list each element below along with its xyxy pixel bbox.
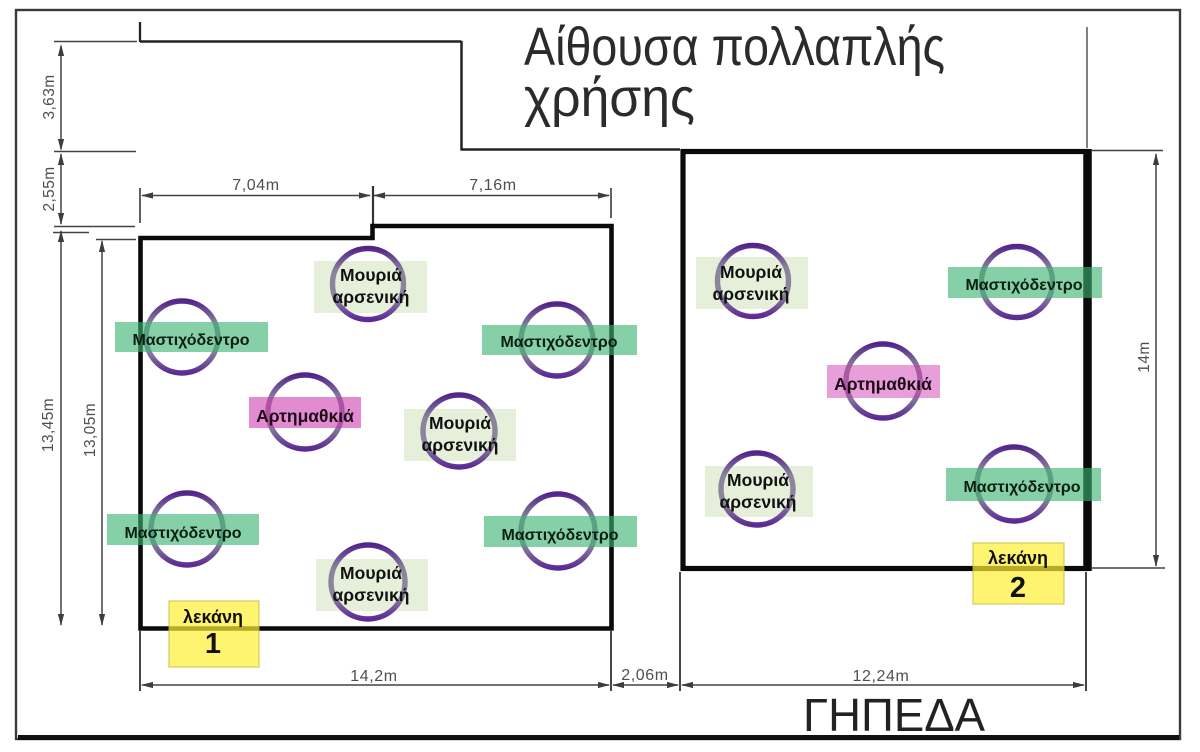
svg-text:αρσενική: αρσενική (720, 492, 797, 512)
svg-text:ΓΗΠΕΔΑ: ΓΗΠΕΔΑ (803, 689, 985, 741)
svg-text:14m: 14m (1136, 341, 1153, 372)
svg-text:λεκάνη: λεκάνη (183, 607, 243, 627)
svg-text:Μουριά: Μουριά (727, 470, 789, 490)
svg-text:13,45m: 13,45m (40, 398, 57, 452)
svg-text:7,04m: 7,04m (232, 177, 279, 194)
svg-text:αρσενική: αρσενική (333, 287, 410, 307)
svg-text:3,63m: 3,63m (41, 74, 58, 119)
svg-text:2: 2 (1010, 572, 1026, 604)
svg-text:2,06m: 2,06m (621, 667, 668, 684)
svg-text:Μουριά: Μουριά (720, 262, 782, 282)
svg-text:12,24m: 12,24m (853, 668, 910, 685)
svg-text:Μαστιχόδεντρο: Μαστιχόδεντρο (500, 334, 617, 351)
svg-text:Μαστιχόδεντρο: Μαστιχόδεντρο (965, 277, 1082, 294)
svg-text:λεκάνη: λεκάνη (988, 548, 1048, 568)
svg-text:2,55m: 2,55m (41, 166, 58, 211)
svg-text:13,05m: 13,05m (82, 403, 99, 457)
svg-text:Μουριά: Μουριά (340, 265, 402, 285)
svg-text:Μαστιχόδεντρο: Μαστιχόδεντρο (132, 332, 249, 349)
svg-text:αρσενική: αρσενική (333, 585, 410, 605)
svg-text:αρσενική: αρσενική (422, 435, 499, 455)
svg-text:1: 1 (205, 628, 221, 660)
svg-text:Αρτημαθκιά: Αρτημαθκιά (834, 374, 932, 394)
svg-text:14,2m: 14,2m (350, 668, 397, 685)
svg-text:χρήσης: χρήσης (524, 68, 695, 128)
svg-text:Μαστιχόδεντρο: Μαστιχόδεντρο (963, 479, 1080, 496)
svg-text:Μουριά: Μουριά (429, 413, 491, 433)
svg-text:Μαστιχόδεντρο: Μαστιχόδεντρο (124, 525, 241, 542)
svg-text:Μουριά: Μουριά (340, 563, 402, 583)
svg-text:Αρτημαθκιά: Αρτημαθκιά (256, 406, 354, 426)
svg-text:Μαστιχόδεντρο: Μαστιχόδεντρο (501, 527, 618, 544)
svg-text:αρσενική: αρσενική (713, 284, 790, 304)
svg-text:7,16m: 7,16m (469, 177, 516, 194)
